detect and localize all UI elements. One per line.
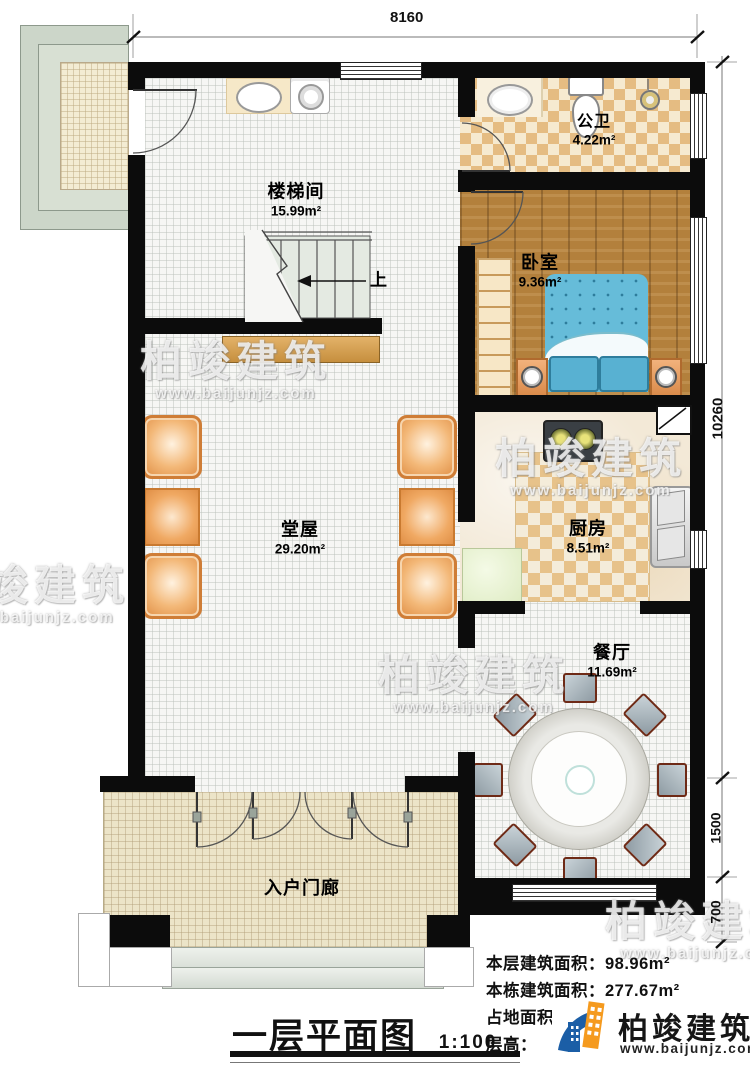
- wall: [420, 62, 705, 78]
- wall: [145, 318, 382, 334]
- room-name: 入户门廊: [264, 877, 340, 900]
- stairs-direction-label: 上: [370, 269, 388, 290]
- understair-cabinet: [222, 336, 380, 363]
- room-label-bathroom: 公卫 4.22m²: [573, 113, 616, 150]
- window: [340, 62, 422, 80]
- wardrobe: [477, 258, 512, 398]
- wall: [690, 157, 705, 217]
- side-table: [144, 488, 200, 546]
- bathroom-sink: [487, 84, 533, 116]
- window: [512, 884, 657, 902]
- dining-table-center: [565, 765, 595, 795]
- dim-right-height: 10260: [709, 398, 726, 440]
- stove-burner: [574, 428, 596, 450]
- room-area: 11.69m²: [587, 664, 637, 681]
- stove-burner: [550, 428, 572, 450]
- fridge-counter: [462, 548, 522, 602]
- watermark-company: 柏竣建筑: [0, 562, 130, 609]
- armchair: [397, 415, 457, 479]
- porch-pillar: [427, 915, 470, 947]
- wall: [475, 172, 690, 190]
- room-label-hall: 堂屋 29.20m²: [275, 518, 325, 557]
- porch-column-base-right: [424, 947, 474, 987]
- porch-pillar: [110, 915, 170, 947]
- wall: [640, 601, 690, 614]
- title-underline-thick: [230, 1051, 520, 1057]
- dining-chair: [657, 763, 687, 797]
- room-label-kitchen: 厨房 8.51m²: [567, 517, 610, 556]
- room-area: 29.20m²: [275, 541, 325, 558]
- dim-top-width: 8160: [390, 9, 423, 26]
- wall: [458, 246, 475, 412]
- info-floor-height: 层高：: [486, 1031, 537, 1055]
- floor-plan: 柏竣建筑 www.baijunjz.com 柏竣建筑 www.baijunjz.…: [0, 0, 750, 1065]
- dining-chair: [473, 763, 503, 797]
- room-name: 楼梯间: [268, 180, 325, 203]
- info-label: 层高：: [486, 1036, 537, 1054]
- window: [690, 217, 707, 364]
- side-table: [399, 488, 455, 546]
- stairs-up-text: 上: [370, 269, 388, 290]
- room-name: 卧室: [519, 251, 562, 274]
- toilet-tank: [568, 76, 604, 96]
- room-name: 厨房: [567, 517, 610, 540]
- brand-website: www.baijunjz.com: [620, 1041, 750, 1056]
- info-floor-area: 本层建筑面积：98.96m²: [486, 950, 670, 974]
- wall: [458, 601, 475, 648]
- nightstand-lamp: [655, 366, 677, 388]
- brand-logo: 柏竣建筑 www.baijunjz.com: [552, 998, 750, 1065]
- laundry-sink: [236, 82, 282, 113]
- wall: [458, 752, 475, 878]
- wall: [458, 170, 475, 192]
- shower-head: [640, 90, 660, 110]
- wall: [128, 62, 340, 78]
- dim-right-porch: 700: [708, 900, 724, 923]
- wall: [128, 62, 145, 90]
- washing-machine-drum: [298, 84, 324, 110]
- title-underline-thin: [230, 1062, 520, 1063]
- nightstand-lamp: [521, 366, 543, 388]
- side-porch-pad: [60, 62, 129, 190]
- room-label-dining: 餐厅 11.69m²: [587, 641, 637, 680]
- kitchen-sink-bowl: [657, 490, 685, 526]
- armchair: [142, 553, 202, 619]
- wall: [405, 776, 462, 792]
- porch-column-base-left: [104, 947, 172, 987]
- info-value: 98.96m²: [605, 955, 670, 973]
- room-label-stairwell: 楼梯间 15.99m²: [268, 180, 325, 219]
- room-name: 公卫: [573, 113, 616, 133]
- porch-side-strip: [78, 913, 110, 987]
- watermark-url: www.baijunjz.com: [0, 609, 130, 626]
- room-name: 餐厅: [587, 641, 637, 664]
- armchair: [142, 415, 202, 479]
- brand-logo-icon: [552, 998, 618, 1065]
- wall: [128, 155, 145, 778]
- room-area: 4.22m²: [573, 133, 616, 150]
- entry-step-1: [162, 947, 444, 969]
- wall: [458, 412, 475, 522]
- flue-duct: [656, 405, 692, 435]
- room-area: 8.51m²: [567, 540, 610, 557]
- info-label: 本层建筑面积：: [486, 955, 605, 973]
- wall: [458, 78, 475, 117]
- room-area: 15.99m²: [268, 203, 325, 220]
- kitchen-sink-bowl: [657, 525, 685, 561]
- wall: [690, 362, 705, 530]
- armchair: [397, 553, 457, 619]
- room-area: 9.36m²: [519, 274, 562, 291]
- room-name: 堂屋: [275, 518, 325, 541]
- window: [690, 93, 707, 159]
- window: [690, 530, 707, 569]
- pillow: [549, 356, 599, 392]
- pillow: [599, 356, 649, 392]
- room-label-porch: 入户门廊: [264, 877, 340, 900]
- dim-right-dining: 1500: [708, 812, 724, 843]
- watermark: 柏竣建筑 www.baijunjz.com: [0, 552, 130, 626]
- entry-step-2: [162, 967, 444, 989]
- wall: [100, 776, 195, 792]
- room-label-bedroom: 卧室 9.36m²: [519, 251, 562, 290]
- wall: [690, 567, 705, 915]
- wall: [690, 62, 705, 93]
